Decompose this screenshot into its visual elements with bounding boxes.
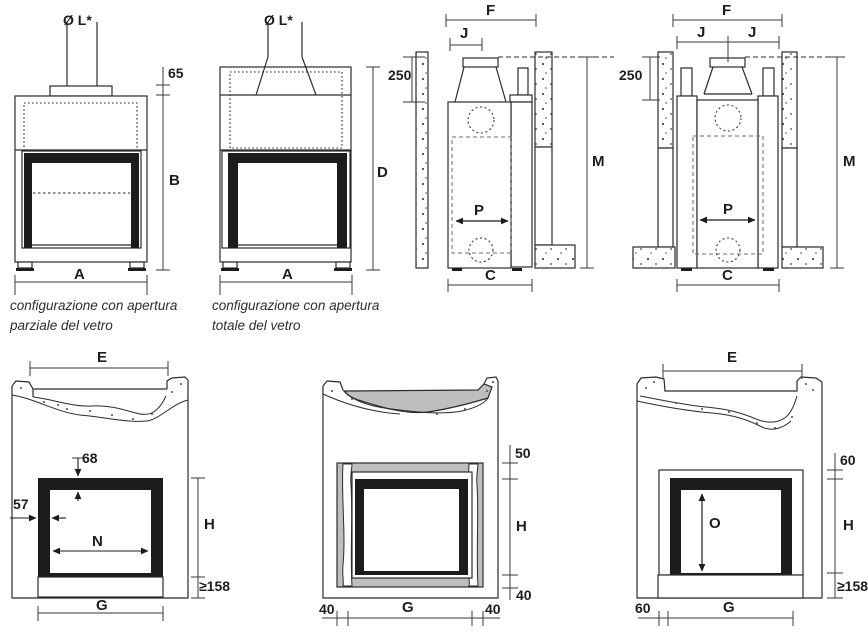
dim-label-J-2a: J <box>697 26 705 40</box>
caption-partial-line1: configurazione con apertura <box>10 296 177 315</box>
dim-label-J-2b: J <box>748 26 756 40</box>
dim-label-A-2: A <box>282 268 293 282</box>
foot <box>130 262 144 268</box>
dim-label-40-r: 40 <box>516 588 532 602</box>
wall-left <box>658 52 673 148</box>
flue-collar <box>50 86 112 96</box>
dim-label-min158-1: ≥158 <box>199 579 230 593</box>
drawing-front-partial <box>15 22 170 295</box>
dim-label-P-2: P <box>723 203 733 217</box>
foot <box>336 262 350 268</box>
dim-label-65: 65 <box>168 66 184 80</box>
dim-label-B: B <box>169 174 180 188</box>
drawing-front-total <box>220 22 380 295</box>
dim-label-flue-1: Ø L* <box>63 13 92 27</box>
foot <box>18 262 32 268</box>
drawing-rough-opening <box>10 361 205 621</box>
dim-label-flue-2: Ø L* <box>264 13 293 27</box>
dim-label-N: N <box>92 535 103 549</box>
fireplace-dimension-sheet: Ø L* 65 B A configurazione con apertura … <box>0 0 868 635</box>
dim-label-40-bl: 40 <box>319 602 335 616</box>
flue-cap <box>463 58 498 67</box>
dim-label-F-1: F <box>486 4 495 18</box>
caption-total-line1: configurazione con apertura <box>212 296 379 315</box>
dim-label-M-2: M <box>843 155 856 169</box>
dim-label-E-1: E <box>97 351 107 365</box>
air-pipe-right <box>763 68 774 96</box>
caption-partial-line2: parziale del vetro <box>10 316 113 335</box>
dim-label-250-2: 250 <box>619 68 642 82</box>
footing-left <box>633 247 675 268</box>
dim-label-H-2: H <box>516 520 527 534</box>
dim-label-min158-2: ≥158 <box>837 579 868 593</box>
dim-label-P-1: P <box>474 204 484 218</box>
body <box>697 100 758 268</box>
recess-fill <box>345 384 492 413</box>
dim-label-G-1: G <box>96 599 108 613</box>
dim-label-E-2: E <box>727 351 737 365</box>
side-duct-left <box>677 96 697 268</box>
side-duct-right <box>758 96 778 268</box>
dim-label-C-1: C <box>485 269 496 283</box>
dim-label-60-t: 60 <box>840 453 856 467</box>
firebox <box>22 151 141 248</box>
plinth <box>658 575 803 598</box>
body <box>448 102 511 268</box>
dim-label-57: 57 <box>13 497 29 511</box>
dim-label-J-1: J <box>460 27 468 41</box>
wall-right <box>782 52 797 148</box>
drawing-side-single-flue <box>403 14 614 292</box>
firebox <box>222 151 350 248</box>
rear-duct <box>511 102 532 267</box>
dim-label-G-3: G <box>723 601 735 615</box>
dim-label-40-br: 40 <box>485 602 501 616</box>
dim-label-D: D <box>377 166 388 180</box>
footing-right <box>782 247 823 268</box>
dim-label-O: O <box>709 517 721 531</box>
footing <box>535 245 575 268</box>
drawing-finished-opening <box>637 364 843 626</box>
air-pipe-left <box>681 68 692 96</box>
drawing-side-double-flue <box>633 14 845 292</box>
opening-frame <box>38 478 163 577</box>
foot <box>223 262 237 268</box>
dim-label-250-1: 250 <box>388 68 411 82</box>
dim-label-M-1: M <box>592 155 605 169</box>
caption-total-line2: totale del vetro <box>212 316 301 335</box>
dim-label-F-2: F <box>722 4 731 18</box>
air-pipe <box>518 68 528 95</box>
diagram-linework <box>0 0 868 635</box>
drawing-counterframe <box>322 377 518 626</box>
dim-label-A-1: A <box>74 268 85 282</box>
dim-label-68: 68 <box>82 451 98 465</box>
dim-label-G-2: G <box>402 601 414 615</box>
dim-label-H-3: H <box>843 519 854 533</box>
dim-label-60-b: 60 <box>635 601 651 615</box>
dim-label-C-2: C <box>722 269 733 283</box>
plinth <box>38 577 163 597</box>
dim-label-50: 50 <box>515 446 531 460</box>
dim-label-H-1: H <box>204 518 215 532</box>
wall-right <box>535 52 552 147</box>
wall-left <box>416 52 428 268</box>
